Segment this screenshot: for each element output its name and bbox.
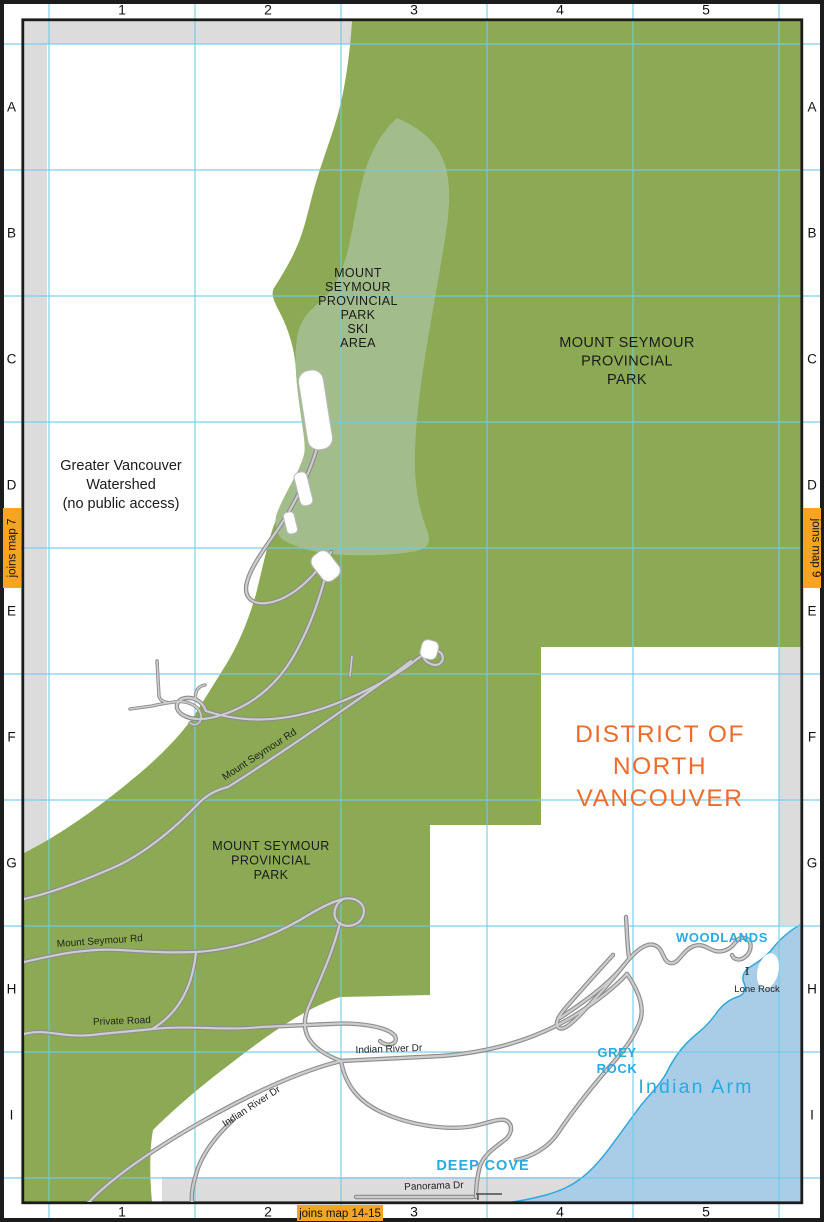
label-ski-line5: SKI xyxy=(347,322,368,336)
grid-col-label-bottom-2: 2 xyxy=(264,1204,272,1220)
grid-row-label-left-d: D xyxy=(7,478,17,493)
grid-col-label-bottom-4: 4 xyxy=(556,1204,564,1220)
grid-col-label-bottom-5: 5 xyxy=(702,1204,710,1220)
label-grey-rock-line1: GREY xyxy=(597,1045,636,1060)
grid-col-label-top-1: 1 xyxy=(118,2,126,18)
label-park-east-line2: PROVINCIAL xyxy=(581,354,673,370)
grid-row-label-right-i: I xyxy=(810,1108,814,1123)
map-page: MOUNT SEYMOUR PROVINCIAL PARK SKI AREA M… xyxy=(0,0,824,1222)
map-canvas: MOUNT SEYMOUR PROVINCIAL PARK SKI AREA M… xyxy=(0,0,824,1222)
label-park-south-line1: MOUNT SEYMOUR xyxy=(212,839,329,853)
label-district-line2: NORTH xyxy=(613,753,707,780)
label-district-line3: VANCOUVER xyxy=(577,785,744,812)
join-tab-bottom[interactable]: joins map 14-15 xyxy=(297,1205,383,1221)
grid-row-label-right-d: D xyxy=(807,478,817,493)
label-indian-arm: Indian Arm xyxy=(638,1076,753,1098)
label-private-road: Private Road xyxy=(93,1015,151,1028)
label-ski-line6: AREA xyxy=(340,336,376,350)
lone-rock-marker-icon: I xyxy=(745,965,749,978)
grid-row-label-right-h: H xyxy=(807,982,817,997)
grid-row-label-right-a: A xyxy=(807,100,816,115)
label-watershed-line2: Watershed xyxy=(86,477,156,493)
grid-col-label-top-2: 2 xyxy=(264,2,272,18)
label-district-line1: DISTRICT OF xyxy=(575,721,745,748)
grid-col-label-top-4: 4 xyxy=(556,2,564,18)
grid-row-label-left-c: C xyxy=(7,352,17,367)
label-ski-line4: PARK xyxy=(341,308,376,322)
label-woodlands: WOODLANDS xyxy=(676,930,768,945)
join-tab-left-label[interactable]: joins map 7 xyxy=(7,519,19,579)
grid-row-label-left-b: B xyxy=(7,226,16,241)
join-tab-right-label[interactable]: joins map 9 xyxy=(810,518,822,578)
join-tab-left[interactable]: joins map 7 xyxy=(3,508,21,588)
label-park-south-line2: PROVINCIAL xyxy=(231,854,311,868)
label-ski-line1: MOUNT xyxy=(334,266,382,280)
grid-row-label-left-g: G xyxy=(6,856,17,871)
grid-col-label-top-3: 3 xyxy=(410,2,418,18)
label-watershed-line3: (no public access) xyxy=(63,496,180,512)
label-park-east-line3: PARK xyxy=(607,372,647,388)
grid-row-label-right-e: E xyxy=(807,604,816,619)
grid-row-label-right-b: B xyxy=(807,226,816,241)
label-ski-line2: SEYMOUR xyxy=(325,280,391,294)
grid-row-label-right-g: G xyxy=(807,856,818,871)
join-tab-right[interactable]: joins map 9 xyxy=(803,508,822,588)
label-grey-rock-line2: ROCK xyxy=(597,1061,638,1076)
margin-strip-top xyxy=(24,21,352,44)
grid-row-label-left-a: A xyxy=(7,100,16,115)
grid-row-label-left-i: I xyxy=(10,1108,14,1123)
label-park-east-line1: MOUNT SEYMOUR xyxy=(559,335,694,351)
label-watershed-line1: Greater Vancouver xyxy=(60,458,182,474)
label-ski-line3: PROVINCIAL xyxy=(318,294,398,308)
grid-row-label-left-e: E xyxy=(7,604,16,619)
label-deep-cove: DEEP COVE xyxy=(436,1158,529,1174)
label-lone-rock: Lone Rock xyxy=(734,984,780,995)
grid-row-label-left-h: H xyxy=(7,982,17,997)
grid-row-label-right-f: F xyxy=(808,730,816,745)
margin-strip-left xyxy=(24,21,47,853)
label-indian-river-dr-east: Indian River Dr xyxy=(355,1043,423,1056)
grid-row-label-left-f: F xyxy=(7,730,15,745)
grid-col-label-bottom-1: 1 xyxy=(118,1204,126,1220)
label-panorama-dr: Panorama Dr xyxy=(404,1180,464,1193)
join-tab-bottom-label[interactable]: joins map 14-15 xyxy=(298,1208,381,1220)
grid-col-label-top-5: 5 xyxy=(702,2,710,18)
grid-row-label-right-c: C xyxy=(807,352,817,367)
grid-col-label-bottom-3: 3 xyxy=(410,1204,418,1220)
label-park-south-line3: PARK xyxy=(254,868,289,882)
margin-strip-right xyxy=(779,647,801,925)
